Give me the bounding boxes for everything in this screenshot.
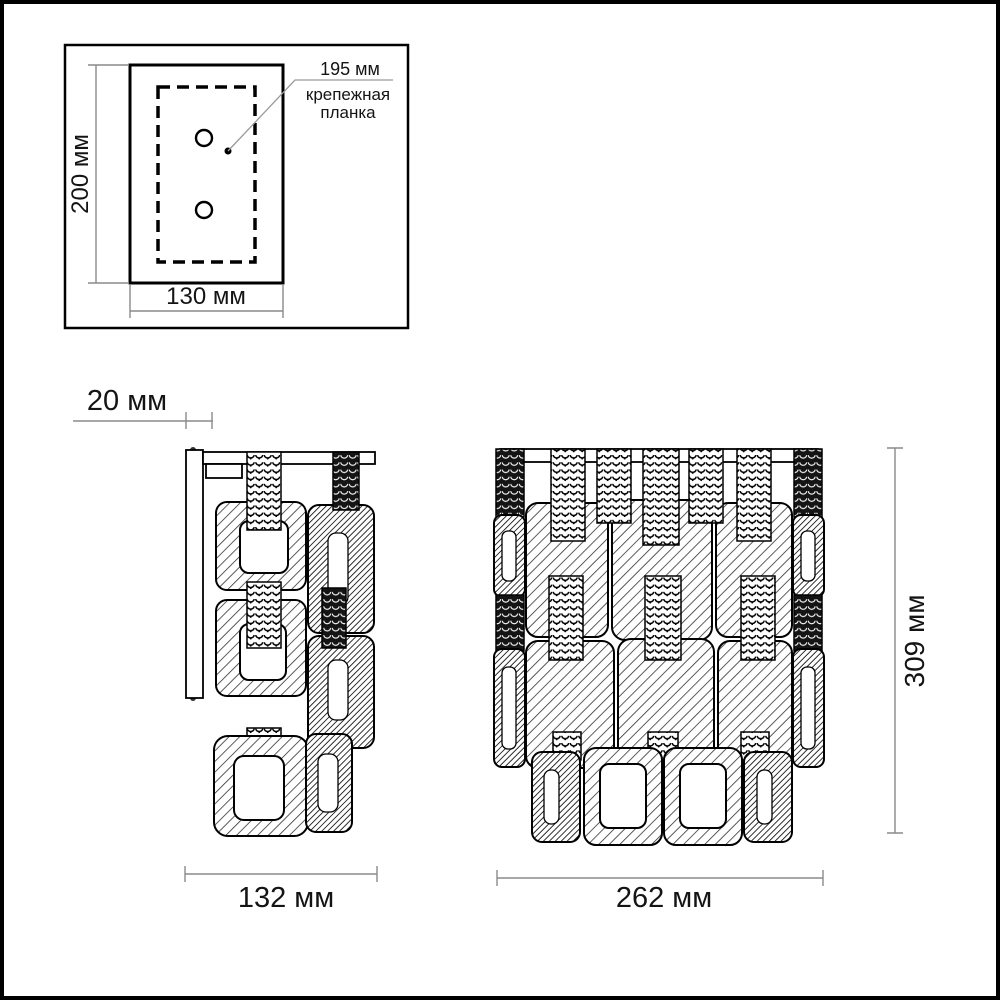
crystal-slot <box>318 754 338 812</box>
bead-chain <box>247 582 281 648</box>
crystal-window <box>600 764 646 828</box>
mount-width-label: 130 мм <box>166 283 246 310</box>
front-width-label: 262 мм <box>616 882 712 914</box>
bead-chain <box>689 449 723 523</box>
wall-offset-label: 20 мм <box>87 385 167 417</box>
bead-chain <box>741 576 775 660</box>
bracket-length-label: 195 мм <box>320 59 380 79</box>
crystal-slot <box>757 770 772 824</box>
bead-chain <box>597 449 631 523</box>
mount-height-label: 200 мм <box>67 134 94 214</box>
dim-line-side-width <box>185 866 377 882</box>
wall-backplate <box>186 450 203 698</box>
mounting-plate <box>130 65 283 283</box>
bead-chain <box>247 452 281 530</box>
bead-chain-dark <box>794 595 822 651</box>
crystal-slot <box>502 531 516 581</box>
bracket-caption-line1: крепежная <box>306 85 390 104</box>
bead-chain-dark <box>333 452 359 510</box>
mounting-hole-bottom <box>196 202 212 218</box>
crystal-slot <box>502 667 516 749</box>
bracket-caption-line2: планка <box>320 103 376 122</box>
front-height-label: 309 мм <box>899 595 930 688</box>
crystal-slot <box>801 667 815 749</box>
front-view <box>494 449 824 845</box>
canopy-step <box>206 464 242 478</box>
side-view <box>186 447 375 836</box>
bead-chain <box>549 576 583 660</box>
crystal-slot <box>801 531 815 581</box>
bead-chain-dark <box>794 449 822 517</box>
side-width-label: 132 мм <box>238 882 334 914</box>
mounting-hole-top <box>196 130 212 146</box>
bead-chain <box>643 449 679 545</box>
crystal-window <box>234 756 284 820</box>
bead-chain <box>551 449 585 541</box>
crystal-slot <box>328 660 348 720</box>
bead-chain-dark <box>496 449 524 517</box>
crystal-slot <box>544 770 559 824</box>
crystal-window <box>680 764 726 828</box>
bead-chain <box>645 576 681 660</box>
bead-chain-dark <box>322 588 346 648</box>
bead-chain-dark <box>496 595 524 651</box>
bead-chain <box>737 449 771 541</box>
mounting-detail-view: 200 мм 130 мм 195 мм крепежная планка <box>65 45 408 328</box>
dimension-drawing: 200 мм 130 мм 195 мм крепежная планка <box>0 0 1000 1000</box>
